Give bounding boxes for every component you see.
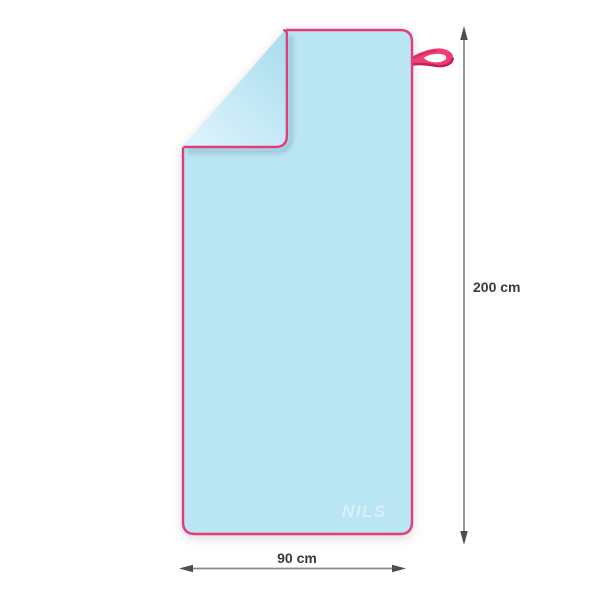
brand-logo: NILS bbox=[342, 502, 387, 521]
arrow-right-icon bbox=[392, 565, 406, 573]
towel-folded-corner bbox=[184, 30, 287, 147]
arrow-up-icon bbox=[460, 26, 468, 40]
arrow-left-icon bbox=[179, 565, 193, 573]
width-label: 90 cm bbox=[277, 550, 317, 566]
product-dimension-diagram: NILS 200 cm 90 cm bbox=[0, 0, 600, 600]
towel-body bbox=[183, 30, 412, 534]
towel: NILS bbox=[183, 30, 412, 534]
diagram-svg: NILS 200 cm 90 cm bbox=[0, 0, 600, 600]
hanging-loop bbox=[408, 48, 453, 66]
height-label: 200 cm bbox=[473, 279, 520, 295]
arrow-down-icon bbox=[460, 531, 468, 545]
height-dimension-arrow bbox=[460, 26, 468, 545]
